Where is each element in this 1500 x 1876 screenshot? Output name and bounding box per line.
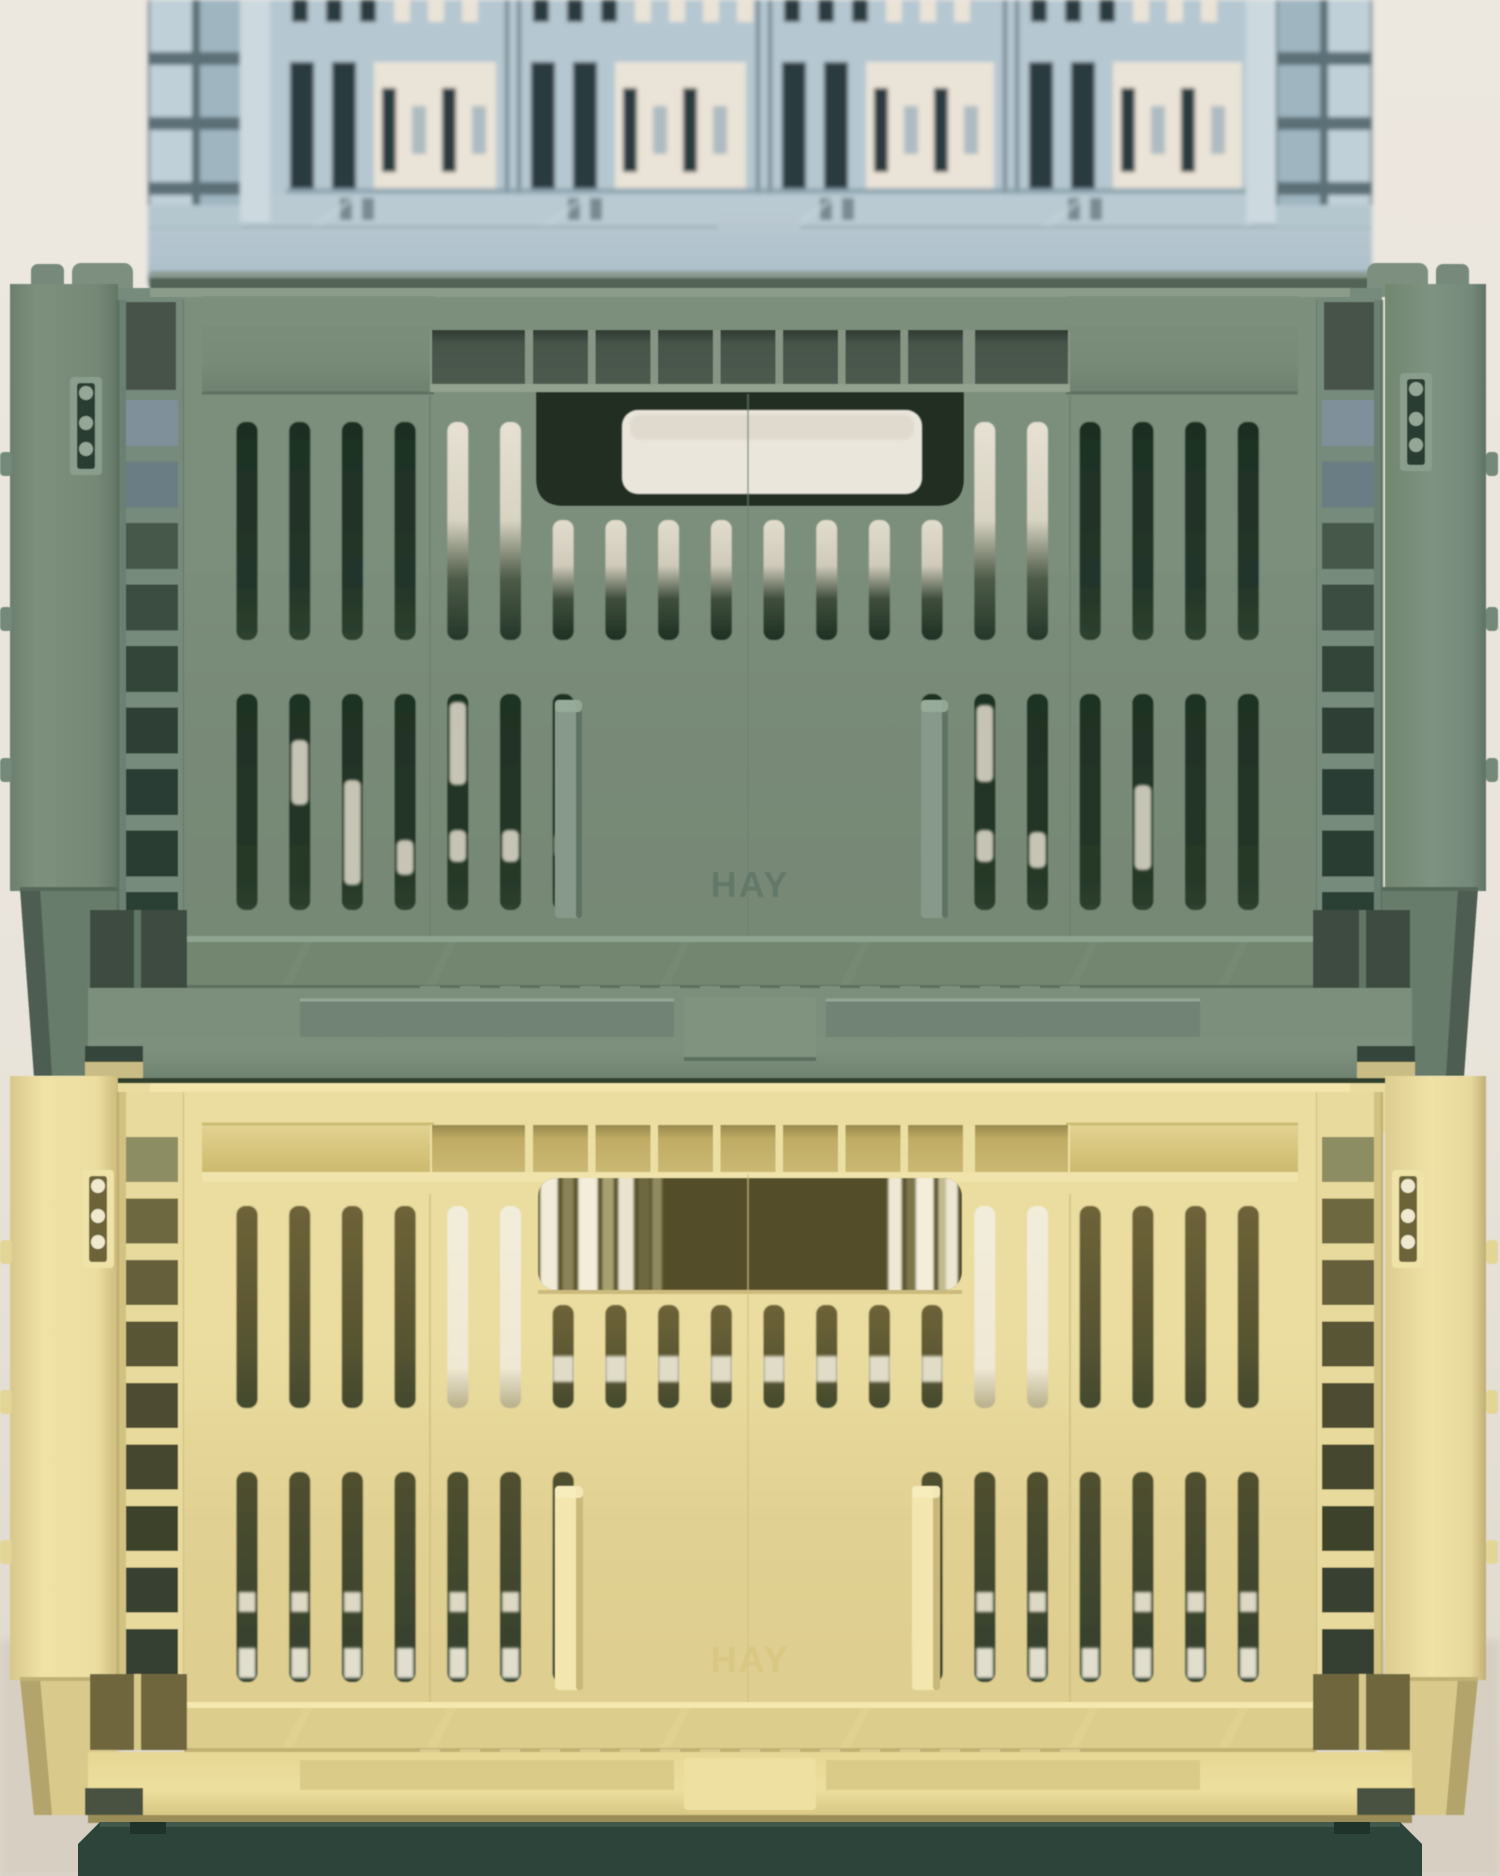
svg-text:HAY: HAY xyxy=(711,1639,790,1680)
svg-text:HAY: HAY xyxy=(711,864,790,905)
